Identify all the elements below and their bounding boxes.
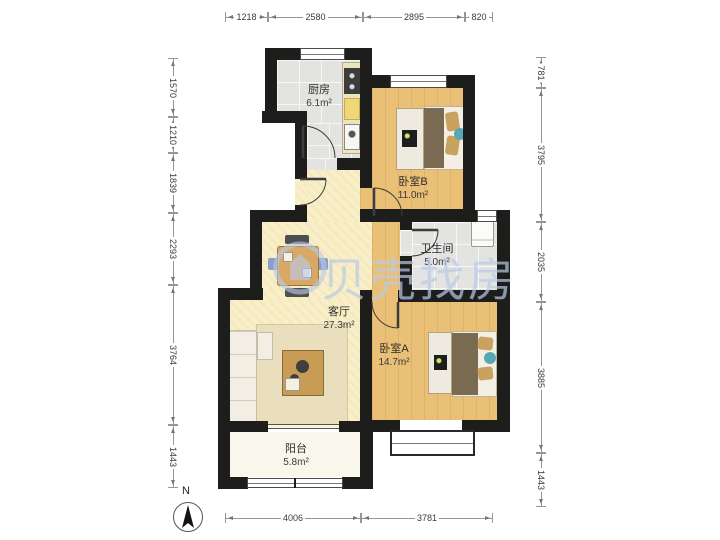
wall — [250, 210, 262, 300]
dimension-bottom: 3781 — [361, 513, 493, 523]
wall — [497, 210, 510, 432]
balcony-door-post — [339, 421, 347, 432]
dimension-top: 820 — [465, 12, 493, 22]
sofa — [227, 330, 257, 424]
water-heater — [471, 219, 494, 247]
tv-icon — [402, 130, 417, 147]
dimension-right: 1443 — [536, 453, 546, 507]
bathroom-window — [477, 210, 497, 222]
wall — [463, 75, 475, 222]
living-room-label: 客厅 27.3m² — [323, 306, 354, 332]
wall — [360, 48, 372, 188]
compass-icon — [173, 502, 203, 532]
tray-icon — [285, 378, 300, 391]
room-area: 27.3m² — [323, 319, 354, 332]
kitchen-worktop — [344, 98, 360, 120]
room-name: 卧室A — [378, 343, 409, 356]
dimension-left: 1443 — [168, 425, 178, 488]
wall — [398, 290, 510, 302]
bedroom-a-door-threshold — [372, 290, 398, 302]
dining-bench — [285, 288, 309, 297]
bathroom-label: 卫生间 5.0m² — [421, 243, 454, 269]
dining-bench — [285, 235, 309, 244]
bed-blanket — [452, 333, 478, 395]
wall — [218, 288, 230, 489]
dimension-left: 1839 — [168, 153, 178, 213]
dimension-left: 1570 — [168, 58, 178, 117]
wall — [337, 158, 360, 170]
balcony-label: 阳台 5.8m² — [283, 443, 309, 469]
room-name: 卫生间 — [421, 243, 454, 256]
sofa-chaise — [257, 332, 273, 360]
dimension-left: 3764 — [168, 285, 178, 425]
room-name: 阳台 — [283, 443, 309, 456]
dimension-right: 781 — [536, 57, 546, 88]
room-area: 5.8m² — [283, 456, 309, 469]
wall — [372, 75, 390, 88]
bedroom-b-label: 卧室B 11.0m² — [398, 176, 428, 202]
room-name: 卧室B — [398, 176, 428, 189]
place-setting — [283, 252, 293, 262]
pillow — [477, 366, 493, 380]
balcony-window-mullion — [294, 478, 296, 488]
room-name: 厨房 — [306, 84, 332, 97]
dimension-top: 2580 — [268, 12, 363, 22]
wall — [360, 209, 475, 222]
north-label: N — [182, 485, 190, 497]
room-area: 14.7m² — [378, 356, 409, 369]
tv-icon — [434, 355, 447, 370]
dimension-right: 2035 — [536, 222, 546, 302]
floorplan-canvas: 厨房 6.1m² 卧室B 11.0m² 卫生间 5.0m² 客厅 27.3m² … — [0, 0, 720, 540]
kitchen-window — [300, 48, 345, 60]
dimension-left: 2293 — [168, 213, 178, 285]
dimension-left: 1210 — [168, 117, 178, 153]
bedroom-b-window — [390, 75, 447, 88]
entry-hall-floor — [307, 170, 360, 222]
dimension-top: 2895 — [363, 12, 465, 22]
bathroom-door-threshold — [400, 230, 412, 256]
dimension-right: 3795 — [536, 88, 546, 222]
dimension-top: 1218 — [225, 12, 268, 22]
bed-blanket — [424, 108, 444, 168]
room-area: 6.1m² — [306, 97, 332, 110]
wall — [447, 75, 463, 88]
bedroom-a-label: 卧室A 14.7m² — [378, 343, 409, 369]
balcony-door-post — [260, 421, 268, 432]
kitchen-label: 厨房 6.1m² — [306, 84, 332, 110]
place-setting — [302, 268, 312, 278]
kitchen-door-threshold — [303, 158, 337, 170]
cushion — [484, 352, 496, 364]
wall — [295, 158, 303, 170]
wall — [400, 222, 412, 230]
entrance-threshold — [295, 179, 307, 205]
stove-icon — [344, 68, 360, 94]
pillow — [477, 336, 493, 350]
balcony-sliding-door — [268, 424, 339, 429]
wall — [218, 421, 262, 432]
sink-icon — [344, 124, 360, 150]
room-area: 11.0m² — [398, 189, 428, 202]
dimension-right: 3885 — [536, 302, 546, 453]
dimension-bottom: 4006 — [225, 513, 361, 523]
wall — [360, 290, 372, 432]
room-name: 客厅 — [323, 306, 354, 319]
room-area: 5.0m² — [421, 256, 454, 269]
wall — [218, 477, 248, 489]
bedroom-a-bay-window — [390, 430, 475, 456]
corridor-floor — [372, 222, 400, 290]
kettle-icon — [296, 360, 309, 373]
